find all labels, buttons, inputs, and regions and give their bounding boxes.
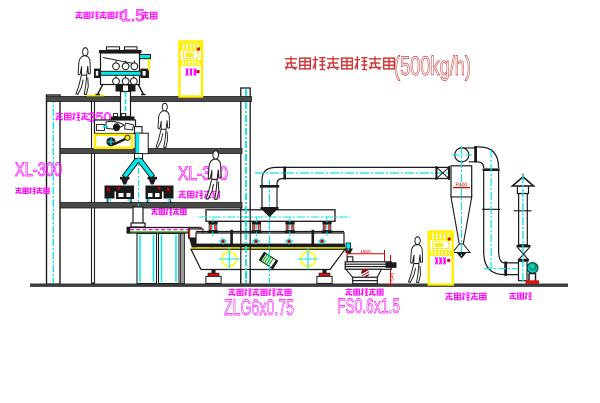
svg-text:1500: 1500 xyxy=(360,249,371,255)
svg-text:545: 545 xyxy=(390,272,396,280)
svg-text:FS0.6x1.5: FS0.6x1.5 xyxy=(337,295,400,318)
svg-text:(500kg/h): (500kg/h) xyxy=(394,51,471,81)
svg-text:1.5: 1.5 xyxy=(121,6,145,25)
svg-text:ZLG6x0.75: ZLG6x0.75 xyxy=(224,295,294,320)
svg-text:XL-300: XL-300 xyxy=(15,160,62,181)
